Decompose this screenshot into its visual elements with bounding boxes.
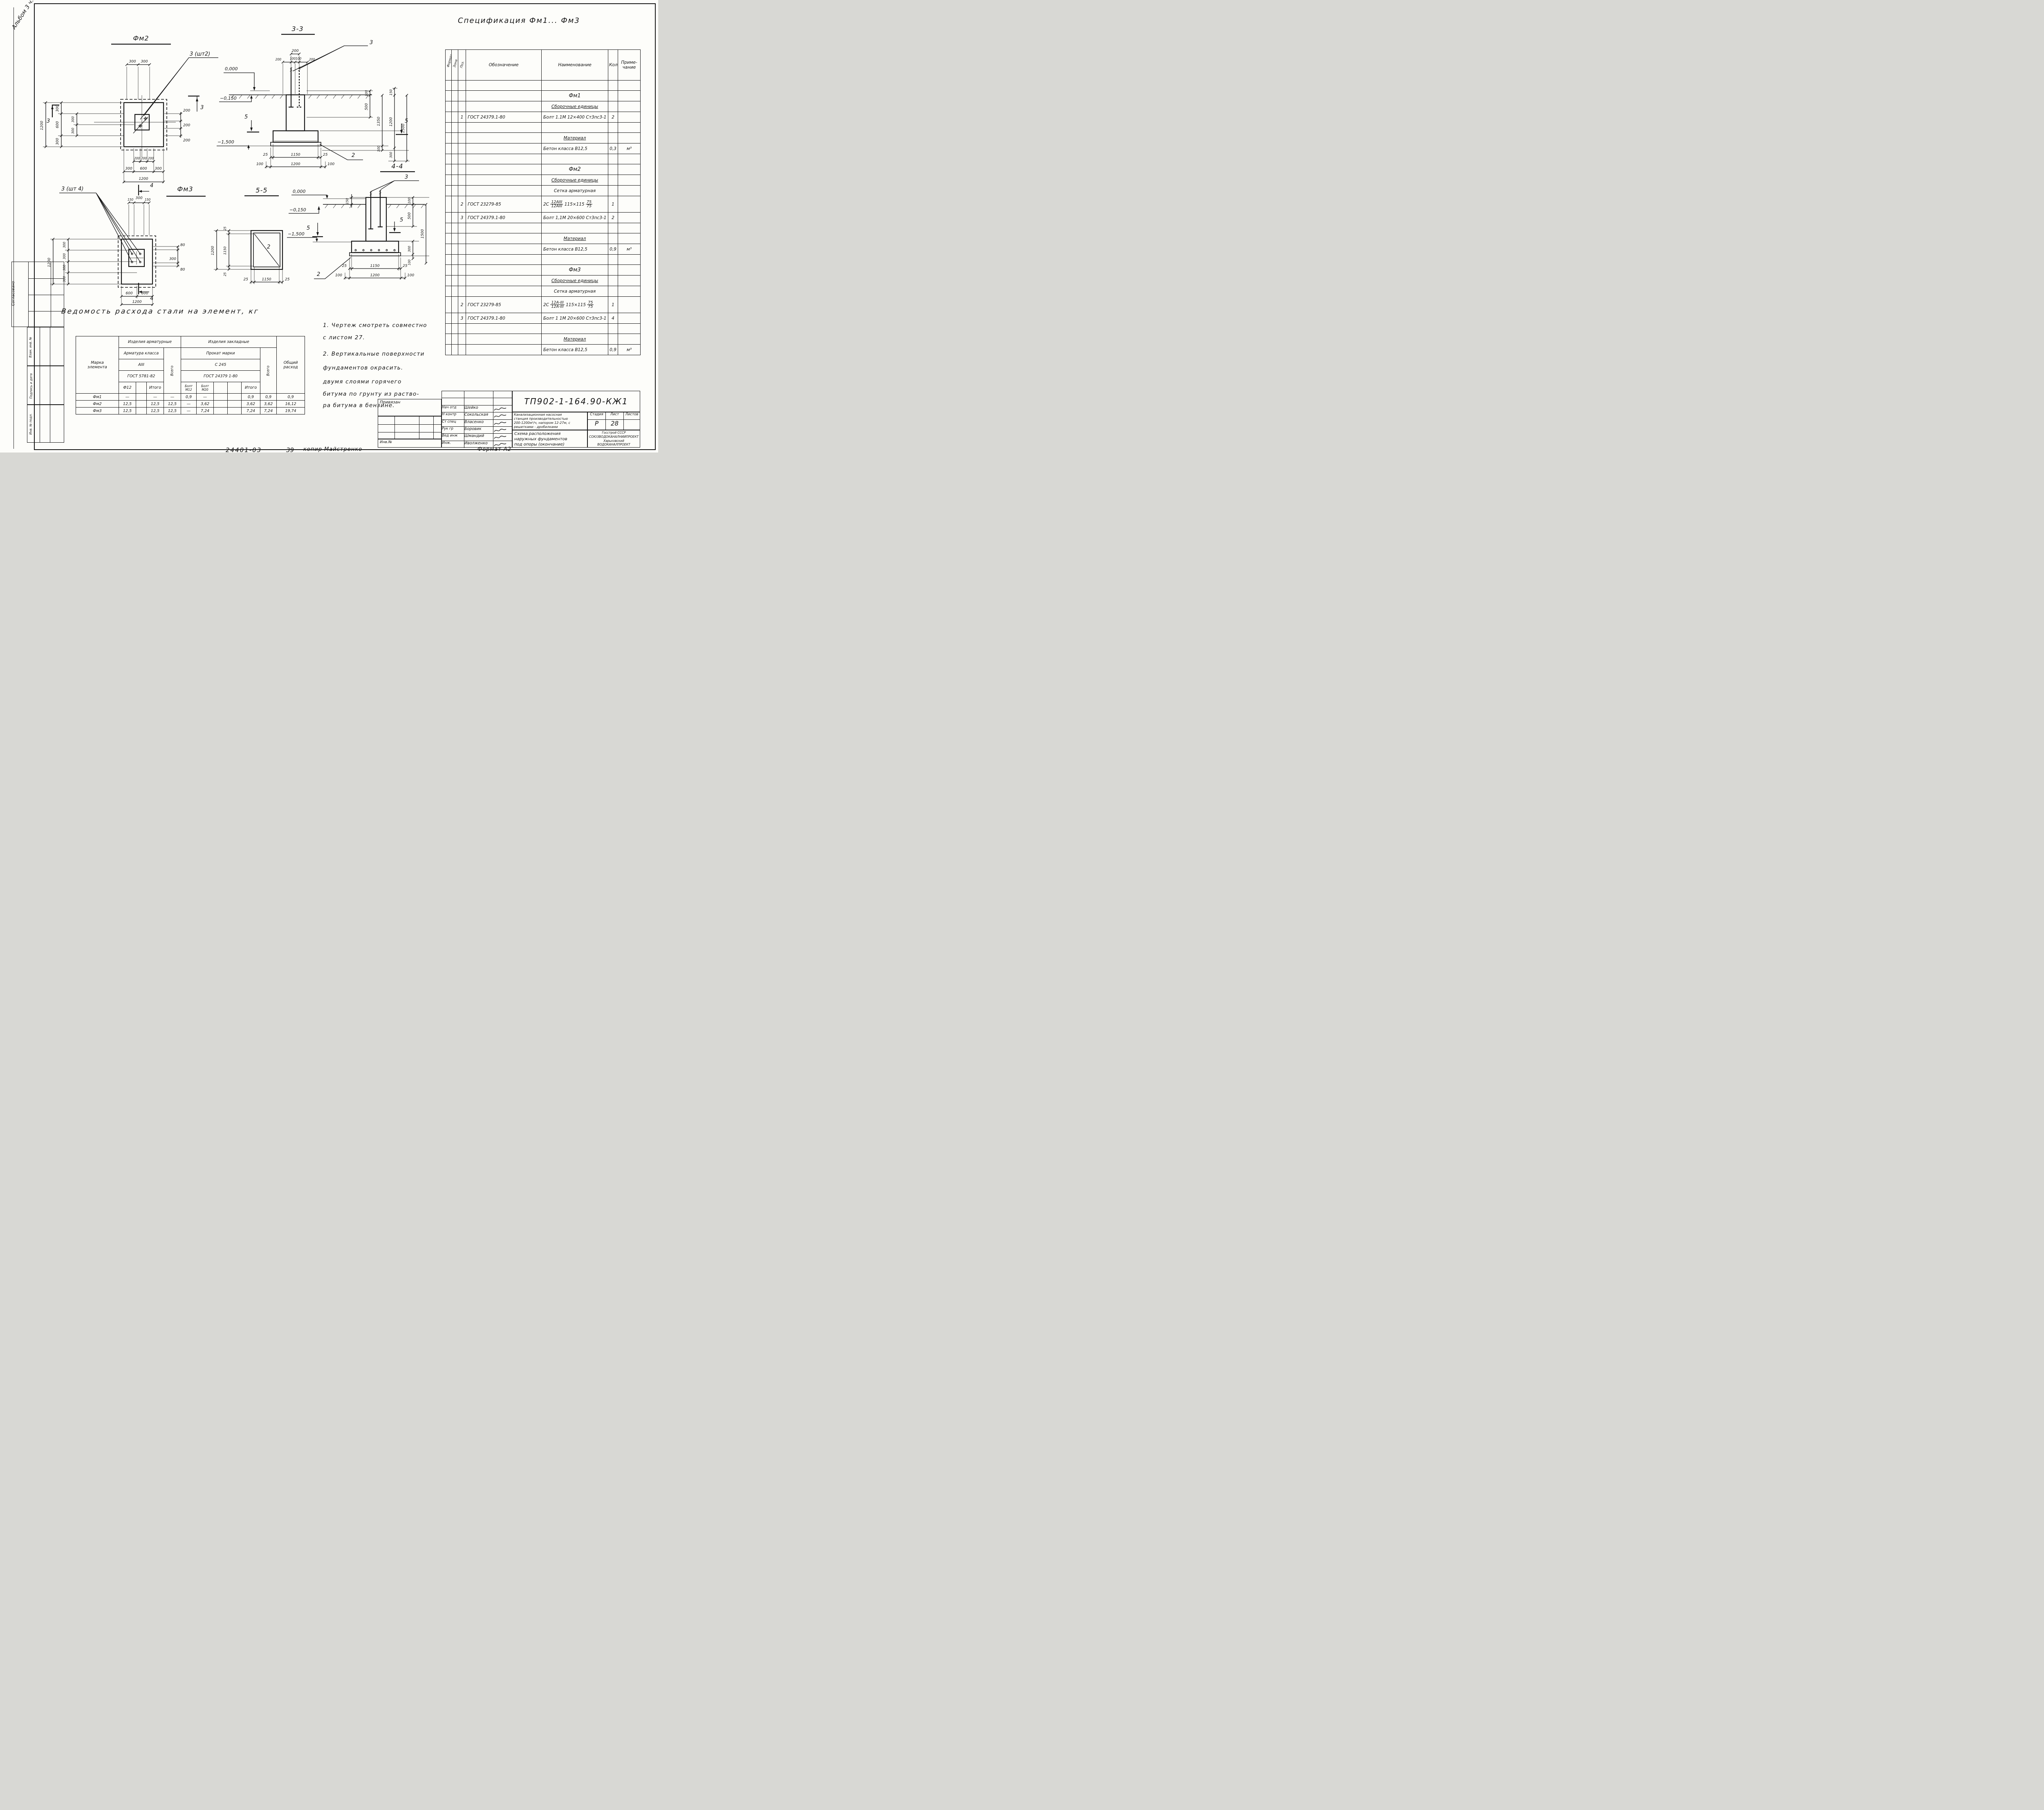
steel-row-fm2: Фм212,512,512,5—3,623,623,6216,12 — [76, 401, 305, 408]
leader-label: 3 — [405, 174, 408, 180]
left-margin-line — [13, 7, 14, 449]
fm2-title: Фм2 — [133, 34, 149, 42]
spec-h-format: Формат — [446, 50, 452, 81]
spec-qty: 0,3 — [608, 143, 618, 154]
spec-subheader: Материал — [542, 133, 608, 143]
plate-label: 2 — [267, 244, 270, 250]
s33-mark5-left: 5 — [244, 114, 259, 132]
steel-table-title: Ведомость расхода стали на элемент, кг — [61, 307, 260, 316]
leader-label: 2 — [317, 271, 320, 278]
fm3-dim-right: 80 300 80 — [153, 243, 185, 272]
cell: 7,24 — [260, 408, 277, 414]
fm3-dim-left: 1200 300 300 300 300 — [47, 238, 137, 285]
s33-title: 3-3 — [291, 25, 303, 33]
spec-note: м³ — [618, 244, 641, 255]
dim: 200 — [276, 58, 282, 61]
dim: 25 — [323, 153, 328, 157]
steel-rebar-grade: АIII — [119, 359, 164, 371]
dim: 300 — [63, 253, 66, 259]
note-line: с листом 27. — [323, 334, 365, 341]
sig-name: Сокольская — [464, 412, 493, 419]
steel-col-m20: БолтМ20 — [197, 382, 214, 394]
note-line: 1. Чертеж смотреть совместно — [323, 322, 427, 329]
s44-leader-plate: 2 — [314, 258, 351, 279]
cell: 12,5 — [147, 401, 164, 408]
spec-h-zona: Зона — [452, 50, 458, 81]
sig-row: Н контр Сокольская — [442, 412, 512, 419]
steel-col-f12: Ф12 — [119, 382, 136, 394]
sig-row: Ст спец Власенко — [442, 420, 512, 427]
dim: 1500 — [401, 123, 406, 133]
spec-gost: ГОСТ 23279-85 — [466, 196, 542, 213]
footer-copier: копир Майстренко — [303, 446, 362, 452]
sig-role: Инж. — [442, 441, 464, 448]
dim: 150 — [345, 198, 349, 204]
fm3-plan-drawing: Фм3 3 (шт 4) 4 150 300 150 — [39, 180, 211, 307]
dim: 25 — [244, 278, 249, 282]
dim: 500 — [408, 212, 412, 219]
fm3-title: Фм3 — [177, 185, 193, 193]
spec-qty: 4 — [608, 313, 618, 324]
cell: — — [197, 394, 214, 401]
spec-item-name: Бетон класса В12,5 — [542, 345, 608, 355]
spec-subheader: Материал — [542, 334, 608, 345]
steel-consumption-table: Маркаэлемента Изделия арматурные Изделия… — [76, 336, 305, 414]
steel-row-fm3: Фм312,512,512,5—7,247,247,2419,74 — [76, 408, 305, 414]
s44-mark5-left: 5 — [307, 223, 323, 237]
note-line: фундаментов окрасить. — [323, 365, 403, 371]
spec-item-name: Болт 1,1М 20×600 Ст3пс3-1 — [542, 213, 608, 223]
cell: 12,5 — [119, 408, 136, 414]
dim: 200 — [183, 139, 190, 143]
cell: 19,74 — [277, 408, 305, 414]
steel-col-blank — [214, 382, 228, 394]
fm2-dim-top: 300 300 — [126, 60, 151, 99]
dim: 600 — [56, 121, 60, 128]
sig-role: Н контр — [442, 412, 464, 419]
sheets-value — [624, 420, 640, 430]
section-mark-label: 5 — [244, 114, 248, 120]
spec-pos: 3 — [458, 313, 466, 324]
spec-subheader: Сборочные единицы — [542, 276, 608, 286]
fm3-dim-top: 150 300 150 — [128, 196, 151, 235]
steel-col-itogo2: Итого — [242, 382, 260, 394]
dim: 300 — [129, 60, 136, 64]
cell: 12,5 — [164, 408, 181, 414]
steel-col-blank — [136, 382, 147, 394]
spec-item-name: Бетон класса В12,5 — [542, 143, 608, 154]
stamp-inv-box: Инв. № подл. — [27, 405, 64, 443]
dim: 80 — [180, 243, 185, 247]
steel-col-itogo1: Итого — [147, 382, 164, 394]
dim: 200 — [291, 49, 298, 53]
stage-header: Стадия — [588, 412, 606, 419]
tb-inv-label: Инв.№ — [378, 439, 441, 445]
cell: — — [119, 394, 136, 401]
org-line: СОЮЗВОДОКАНАЛНИИПРОЕКТ — [588, 435, 640, 439]
elevation-1500: −1,500 — [217, 139, 234, 145]
cell: 12,5 — [119, 401, 136, 408]
spec-mesh-formula: 2С 12А-III12А-III 115×115 7575 — [542, 297, 608, 313]
spec-pos: 2 — [458, 297, 466, 313]
fm2-dim-left: 1200 300 600 300 300 300 — [40, 101, 134, 148]
dim: 100 — [408, 260, 411, 266]
dim: 25 — [223, 226, 227, 231]
section-4-4-drawing: 4-4 3 0,000 −0,150 −1,500 — [278, 159, 446, 307]
dim: 200 — [134, 157, 140, 160]
spec-qty: 2 — [608, 213, 618, 223]
s33-leader-plate: 2 — [320, 144, 363, 160]
fm3-mark4-top: 4 — [139, 183, 153, 195]
dim: 300 — [56, 138, 60, 145]
dim: 300 — [389, 152, 393, 158]
dim: 200 — [309, 58, 315, 61]
dim: 100 — [335, 273, 342, 278]
stage-value: Р — [588, 420, 606, 430]
project-line: Канализационная насосная — [514, 413, 586, 417]
spec-item-name: Болт 1 1М 20×600 Ст3пс3-1 — [542, 313, 608, 324]
cell: — — [181, 401, 197, 408]
sig-role: Нач отд — [442, 405, 464, 412]
spec-subheader: Сборочные единицы — [542, 175, 608, 186]
sheet-title-line: Схема расположения — [514, 431, 585, 437]
stamp-agreed-label: Согласовано — [11, 281, 16, 306]
s33-leader-bolt: 3 — [293, 40, 373, 71]
spec-gost: ГОСТ 24379.1-80 — [466, 313, 542, 324]
stamp-sign-box: Подпись и дата — [27, 366, 64, 405]
spec-title: Спецификация Фм1... Фм3 — [458, 16, 580, 25]
dim: 1200 — [389, 117, 393, 126]
fm3-leader-bolt: 3 (шт 4) — [59, 186, 140, 262]
s44-mark5-right: 5 — [389, 217, 403, 233]
spec-subheader: Материал — [542, 233, 608, 244]
spec-note: м³ — [618, 143, 641, 154]
cell: — — [164, 394, 181, 401]
org-line: ВОДОКАНАЛПРОЕКТ — [588, 443, 640, 447]
dim: 1200 — [370, 273, 380, 278]
sheet-header: Лист — [606, 412, 624, 419]
sig-role: Ст спец — [442, 420, 464, 426]
tb-sheet-title: Схема расположения наружных фундаментов … — [512, 430, 587, 448]
cell: Фм3 — [76, 408, 119, 414]
elevation-0150: −0,150 — [220, 96, 237, 101]
dim: 100 — [296, 57, 302, 60]
spec-qty: 0,9 — [608, 345, 618, 355]
dim: 200 — [141, 157, 147, 160]
spec-pos: 3 — [458, 213, 466, 223]
steel-col-m12: БолтМ12 — [181, 382, 197, 394]
dim: 100 — [256, 162, 263, 166]
dim: 100 — [407, 273, 414, 278]
tb-project: Канализационная насосная станция произво… — [512, 412, 587, 430]
leader-label: 2 — [352, 152, 355, 159]
dim: 1150 — [262, 278, 271, 282]
org-line: Госстрой СССР — [588, 431, 640, 435]
dim: 300 — [141, 60, 148, 64]
cell — [228, 394, 242, 401]
s44-leader-bolt: 3 — [371, 174, 419, 191]
spec-section-fm1: Фм1 — [542, 91, 608, 101]
cell: Фм1 — [76, 394, 119, 401]
dim: 600 — [126, 291, 132, 296]
dim: 100 — [290, 57, 296, 60]
cell: 3,62 — [260, 401, 277, 408]
s44-dim-right: 100 500 1500 300 100 — [386, 196, 429, 265]
cell: Фм2 — [76, 401, 119, 408]
steel-embed-class: Прокат марки — [181, 348, 260, 359]
spec-subheader: Сборочные единицы — [542, 101, 608, 112]
signature-icon — [493, 420, 512, 426]
dim: 200 — [183, 123, 190, 128]
elevation-0000: 0,000 — [225, 66, 238, 72]
section-mark-label: 5 — [307, 225, 310, 231]
cell: 3,62 — [197, 401, 214, 408]
steel-col-blank — [228, 382, 242, 394]
spec-qty: 1 — [608, 297, 618, 313]
sheet-title-line: наружных фундаментов — [514, 437, 585, 442]
sig-role: Рук гр — [442, 427, 464, 433]
dim: 25 — [223, 272, 227, 276]
s44-title: 4-4 — [391, 162, 403, 170]
steel-row-fm1: Фм1———0,9—0,90,90,9 — [76, 394, 305, 401]
steel-rebar-class: Арматура класса — [119, 348, 164, 359]
spec-pos: 1 — [458, 112, 466, 123]
dim: 300 — [63, 264, 66, 271]
section-mark-label: 4 — [150, 183, 153, 189]
section-mark-label: 5 — [405, 118, 408, 124]
signature-icon — [493, 434, 512, 440]
stamp-sign-label: Подпись и дата — [29, 373, 33, 399]
stamp-vzam-box: Взам. инв. № — [27, 327, 64, 366]
dim: 150 — [145, 198, 151, 202]
fm2-dim-right: 200 200 200 — [164, 109, 190, 143]
sheets-header: Листов — [624, 412, 640, 419]
spec-qty: 1 — [608, 196, 618, 213]
spec-pos: 2 — [458, 196, 466, 213]
album-note: Альбом 3 ч.1 — [11, 0, 37, 31]
note-line: двумя слоями горячего — [323, 379, 401, 385]
footer-order-no: 24401-03 — [226, 446, 262, 452]
spec-gost: ГОСТ 23279-85 — [466, 297, 542, 313]
steel-vsego2: Всего — [260, 348, 277, 394]
fm2-plan-geometry — [94, 95, 176, 157]
section-mark-3-right: 3 — [188, 96, 204, 112]
footer-num: 39 — [286, 446, 294, 452]
signature-icon — [493, 412, 512, 419]
spec-mesh-label: Сетка арматурная — [542, 186, 608, 196]
note-line: 2. Вертикальные поверхности — [323, 351, 425, 357]
cell: — — [181, 408, 197, 414]
cell: — — [147, 394, 164, 401]
dim: 300 — [63, 242, 66, 248]
project-line: станция производительностью — [514, 417, 586, 421]
dim: 300 — [71, 128, 75, 134]
cell: 12,5 — [164, 401, 181, 408]
steel-rebar-gost: ГОСТ 5781-82 — [119, 371, 164, 382]
dim: 1150 — [370, 264, 380, 268]
sig-row: Вед инж Шмандий — [442, 434, 512, 441]
spec-qty: 0,9 — [608, 244, 618, 255]
s33-geometry — [229, 67, 372, 146]
s44-dim-bottom: 25 1150 25 100 1200 100 — [335, 254, 415, 280]
drawing-sheet: Альбом 3 ч.1 Согласовано Взам. инв. № По… — [0, 0, 658, 452]
tb-stage-block: Стадия Лист Листов Р 28 — [587, 412, 640, 430]
tb-doc-number: ТП902-1-164.90-КЖ1 — [512, 391, 640, 412]
tb-pin-label: Привязан — [378, 399, 441, 405]
section-mark-label: 3 — [200, 105, 204, 111]
footer-format: Формат А2 — [477, 446, 511, 452]
project-line: решетками - дробилками — [514, 425, 586, 429]
org-line: Харьковский — [588, 439, 640, 443]
spec-mesh-formula: 2С 12АIII12АIII 115×115 7575 — [542, 196, 608, 213]
tb-organization: Госстрой СССР СОЮЗВОДОКАНАЛНИИПРОЕКТ Хар… — [587, 430, 640, 448]
dim: 100 — [365, 90, 368, 96]
doc-number-text: ТП902-1-164.90-КЖ1 — [524, 396, 628, 406]
spec-qty: 2 — [608, 112, 618, 123]
dim: 1150 — [291, 153, 300, 157]
cell — [214, 401, 228, 408]
dim: 300 — [155, 167, 161, 171]
cell: 12,5 — [147, 408, 164, 414]
s55-title: 5-5 — [255, 186, 267, 194]
s44-elevations: 0,000 −0,150 −1,500 — [287, 189, 366, 242]
tb-pin-box: Привязан — [378, 399, 442, 416]
dim: 25 — [403, 264, 408, 268]
steel-group-rebar: Изделия арматурные — [119, 336, 181, 348]
steel-col-mark: Маркаэлемента — [76, 336, 119, 394]
dim: 1200 — [211, 246, 215, 255]
steel-embed-grade: С 245 — [181, 359, 260, 371]
dim: 1200 — [40, 121, 44, 130]
spec-item-name: Бетон класса В12,5 — [542, 244, 608, 255]
sig-name: Власенко — [464, 420, 493, 426]
signature-icon — [493, 405, 512, 412]
dim: 150 — [128, 198, 134, 202]
tb-inv-box: Инв.№ — [378, 439, 442, 448]
dim: 300 — [125, 167, 132, 171]
specification-table: Формат Зона Поз. Обозначение Наименовани… — [445, 49, 641, 355]
sheet-title-line: под опоры (окончание) — [514, 442, 585, 447]
dim: 300 — [63, 276, 66, 282]
spec-h-prim: Приме-чание — [618, 50, 641, 81]
cell: 0,9 — [181, 394, 197, 401]
spec-gost: ГОСТ 24379.1-80 — [466, 213, 542, 223]
steel-group-embed: Изделия закладные — [181, 336, 277, 348]
cell — [136, 408, 147, 414]
cell: 7,24 — [197, 408, 214, 414]
dim: 600 — [140, 167, 147, 171]
stamp-vzam-label: Взам. инв. № — [29, 337, 32, 358]
spec-section-fm2: Фм2 — [542, 164, 608, 175]
steel-embed-gost: ГОСТ 24379 1-80 — [181, 371, 260, 382]
spec-gost: ГОСТ 24379.1-80 — [466, 112, 542, 123]
note-line: битума по грунту из раство- — [323, 391, 419, 397]
sig-name: Шмандий — [464, 434, 493, 440]
cell — [136, 401, 147, 408]
s44-dim-left150: 150 — [345, 194, 366, 208]
s33-dim-top: 200 200 100 100 200 — [276, 49, 315, 94]
dim: 1350 — [377, 116, 381, 126]
sig-row: Рук гр Боровик — [442, 427, 512, 434]
cell — [214, 408, 228, 414]
sig-name: Боровик — [464, 427, 493, 433]
dim: 1500 — [421, 229, 425, 238]
sig-name: Шейко — [464, 405, 493, 412]
elevation-0000: 0,000 — [293, 189, 306, 194]
leader-label: 3 — [370, 40, 373, 46]
cell: 0,9 — [260, 394, 277, 401]
fm2-leader-bolt: 3 (шт2) — [140, 51, 218, 119]
stamp-inv-label: Инв. № подл. — [29, 414, 32, 435]
cell: 3,62 — [242, 401, 260, 408]
spec-item-name: Болт 1.1М 12×400 Ст3пс3-1 — [542, 112, 608, 123]
dim: 100 — [377, 146, 381, 152]
cell — [228, 401, 242, 408]
dim: 500 — [365, 103, 369, 110]
cell — [228, 408, 242, 414]
steel-col-total: Общийрасход — [277, 336, 305, 394]
spec-h-poz: Поз. — [458, 50, 466, 81]
tb-signatures: Нач отд Шейко Н контр Сокольская Ст спец… — [442, 391, 512, 448]
dim: 80 — [180, 268, 185, 272]
dim: 200 — [148, 157, 154, 160]
steel-vsego1: Всего — [164, 348, 181, 394]
elevation-1500: −1,500 — [288, 231, 305, 237]
elevation-0150: −0,150 — [289, 207, 306, 213]
cell: 0,9 — [242, 394, 260, 401]
cell: 16,12 — [277, 401, 305, 408]
dim: 1150 — [223, 246, 227, 255]
dim: 1200 — [132, 300, 142, 304]
dim: 300 — [135, 196, 142, 200]
s55-dim-left: 1200 25 1150 25 — [211, 226, 253, 276]
dim: 25 — [263, 153, 268, 157]
spec-mesh-label: Сетка арматурная — [542, 286, 608, 297]
dim: 100 — [408, 197, 411, 204]
dim: 1200 — [47, 258, 52, 267]
spec-note: м³ — [618, 345, 641, 355]
spec-h-kol: Кол. — [608, 50, 618, 81]
s33-dim-right: 100 500 1350 100 150 1200 300 1500 — [307, 87, 410, 162]
dim: 300 — [56, 105, 60, 112]
sig-row: Нач отд Шейко — [442, 405, 512, 412]
section-mark-label: 3 — [47, 118, 50, 124]
dim: 200 — [183, 109, 190, 113]
section-mark-label: 5 — [400, 217, 403, 223]
project-line: 200-1200м³/ч, напором 12-27м, с — [514, 421, 586, 425]
dim: 25 — [342, 264, 347, 268]
fm2-leader-label: 3 (шт2) — [190, 51, 210, 57]
dim: 300 — [169, 257, 176, 261]
dim: 300 — [408, 246, 411, 252]
fm2-dim-bottom: 200 200 200 300 600 300 1200 — [123, 148, 165, 183]
dim: 150 — [389, 89, 393, 95]
cell: 0,9 — [277, 394, 305, 401]
spec-h-naim: Наименование — [542, 50, 608, 81]
s33-elevations: 0,000 −0,150 −1,500 — [217, 66, 388, 150]
spec-section-fm3: Фм3 — [542, 265, 608, 276]
tb-pin-grid — [378, 416, 442, 439]
sheet-value: 28 — [606, 420, 624, 430]
section-mark-label: 4 — [150, 296, 153, 302]
leader-label: 3 (шт 4) — [61, 186, 83, 192]
fm3-dim-bottom: 600 600 1200 — [120, 286, 154, 306]
cell: 7,24 — [242, 408, 260, 414]
spec-h-oboz: Обозначение — [466, 50, 542, 81]
sig-role: Вед инж — [442, 434, 464, 440]
signature-icon — [493, 427, 512, 433]
fm2-plan-drawing: Фм2 3 (шт2) 300 300 1200 300 — [37, 31, 225, 190]
